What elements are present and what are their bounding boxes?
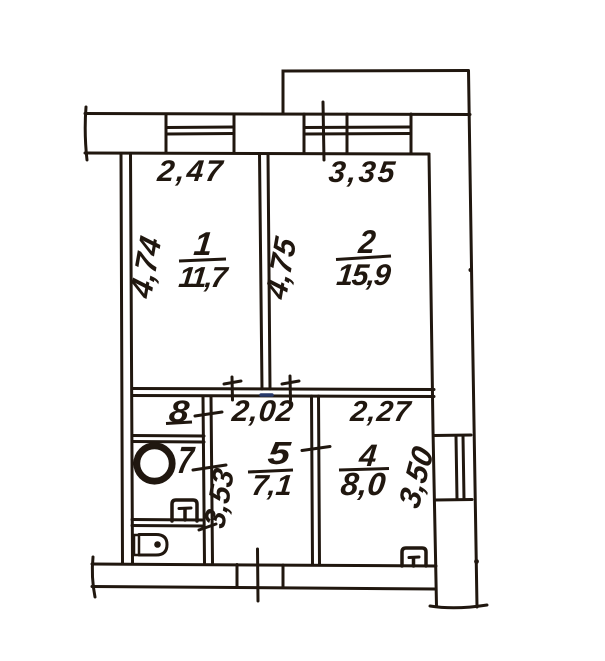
svg-text:2,47: 2,47 xyxy=(155,155,226,188)
svg-text:7,1: 7,1 xyxy=(250,470,294,502)
svg-text:15,9: 15,9 xyxy=(335,259,393,292)
svg-text:3,35: 3,35 xyxy=(327,156,399,189)
svg-text:11,7: 11,7 xyxy=(177,262,230,294)
svg-text:2,02: 2,02 xyxy=(229,395,295,428)
svg-text:4,75: 4,75 xyxy=(259,233,304,304)
svg-text:2: 2 xyxy=(356,224,378,261)
svg-text:1: 1 xyxy=(192,226,214,263)
svg-text:8,0: 8,0 xyxy=(339,466,387,502)
svg-text:2,27: 2,27 xyxy=(348,396,414,428)
svg-text:5: 5 xyxy=(266,435,293,471)
svg-text:7: 7 xyxy=(175,439,197,482)
